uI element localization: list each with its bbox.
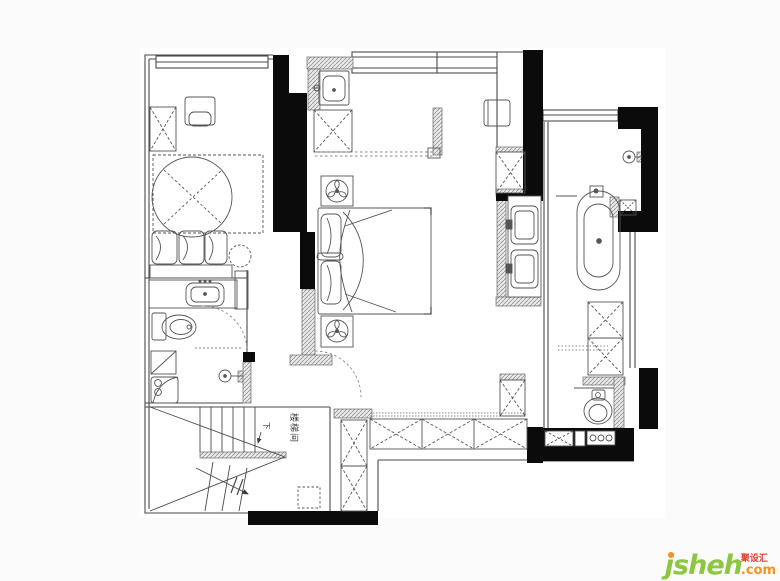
double-sink-vanity: [506, 196, 541, 297]
down-label: 下: [262, 422, 271, 430]
logo-dot-icon: [668, 552, 674, 558]
watermark-logo: jsheh 聚设汇 .com: [665, 552, 776, 579]
stairwell-label: 楼梯间: [288, 413, 300, 443]
floor-plan-page: 楼梯间 下 jsheh 聚设汇 .com: [0, 0, 780, 581]
logo-brand-text: jsheh: [665, 550, 742, 581]
logo-brand-wrap: jsheh: [665, 552, 742, 579]
logo-tld-text: .com: [741, 564, 776, 577]
washing-appliances: [545, 431, 615, 446]
logo-right-column: 聚设汇 .com: [741, 552, 776, 577]
floor-plan-drawing: 楼梯间 下: [0, 0, 780, 581]
